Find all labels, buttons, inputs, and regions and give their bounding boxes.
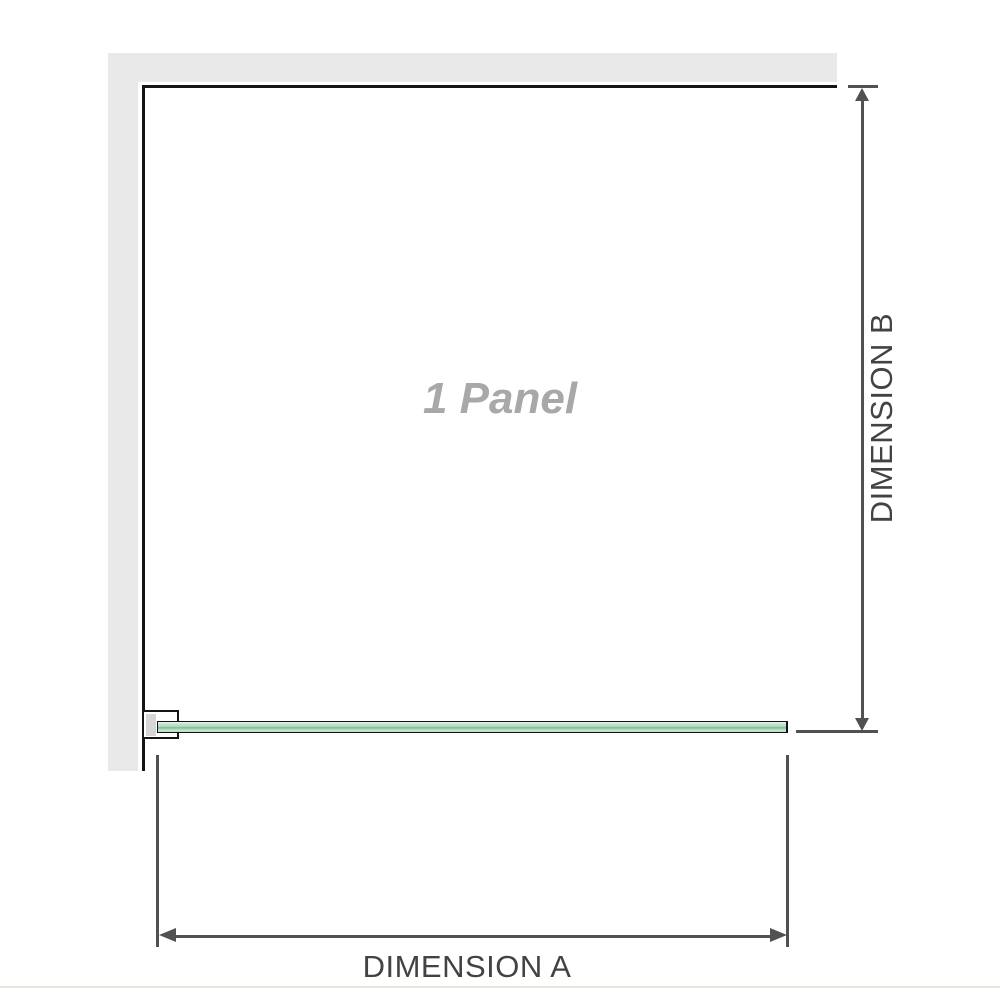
panel-outline-top [142, 85, 837, 88]
shower-screen-dimension-diagram: 1 Panel DIMENSION B DIMENSION A [0, 0, 1000, 1000]
dimension-a-extension-right [786, 755, 789, 947]
arrow-up-icon [855, 88, 869, 101]
arrow-left-icon [159, 928, 176, 942]
dimension-a-label: DIMENSION A [352, 950, 582, 984]
dimension-a-extension-left [156, 755, 159, 947]
panel-outline-left [142, 85, 145, 771]
bracket-insert [146, 714, 156, 736]
wall-top [108, 53, 837, 82]
wall-left [108, 53, 138, 771]
arrow-down-icon [855, 718, 869, 731]
arrow-right-icon [770, 928, 787, 942]
panel-label: 1 Panel [400, 374, 600, 424]
dimension-a-line [172, 935, 773, 938]
baseline-rule [0, 986, 1000, 988]
dimension-b-label: DIMENSION B [865, 303, 899, 533]
glass-panel [157, 721, 788, 733]
